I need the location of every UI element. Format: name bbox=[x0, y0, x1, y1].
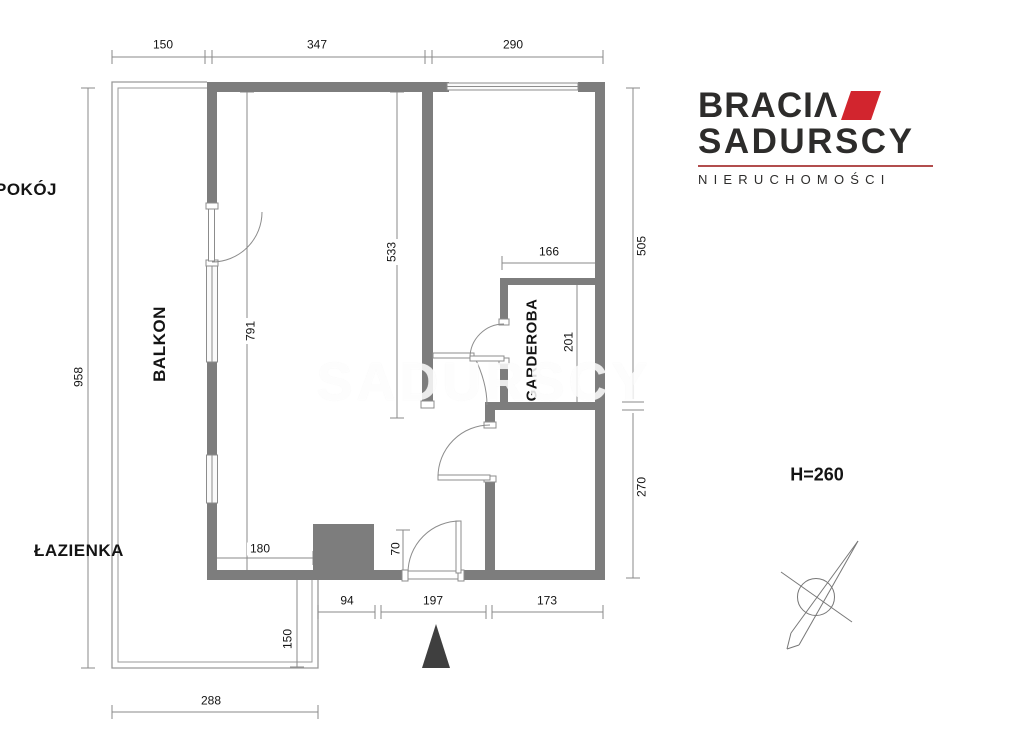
brand-line2: SADURSCY bbox=[698, 124, 933, 160]
dim-pokoj-height: 505 bbox=[636, 233, 649, 259]
dim-balkon-width: 288 bbox=[198, 695, 224, 708]
dim-bottom-2: 197 bbox=[420, 595, 446, 608]
dim-divider: 533 bbox=[386, 239, 399, 265]
dim-garderoba-width: 166 bbox=[536, 246, 562, 259]
room-label-pokoj: POKÓJ bbox=[0, 180, 1019, 200]
dim-salon-height: 791 bbox=[245, 318, 258, 344]
brand-line1: BRACIΛ bbox=[698, 88, 838, 124]
dimension-lines bbox=[81, 50, 644, 719]
dim-balkon-lower: 150 bbox=[282, 626, 295, 652]
windows bbox=[207, 83, 579, 503]
dim-top-right: 290 bbox=[500, 39, 526, 52]
floor-plan-page: SALON POKÓJ BALKON KUCHNIA GARDEROBA ŁAZ… bbox=[0, 0, 1024, 748]
brand-flag-icon bbox=[841, 91, 881, 120]
walls bbox=[207, 82, 605, 580]
room-label-balkon: BALKON bbox=[150, 306, 170, 382]
dim-bottom-1: 94 bbox=[337, 595, 356, 608]
dim-bottom-3: 173 bbox=[534, 595, 560, 608]
room-label-garderoba: GARDEROBA bbox=[524, 299, 541, 402]
dim-garderoba-height: 201 bbox=[563, 329, 576, 355]
dim-left-total: 958 bbox=[73, 364, 86, 390]
dim-top-mid: 347 bbox=[304, 39, 330, 52]
room-label-salon: SALON bbox=[0, 158, 825, 178]
room-label-kuchnia: KUCHNIA bbox=[0, 485, 829, 505]
dim-top-left: 150 bbox=[150, 39, 176, 52]
room-label-lazienka: ŁAZIENKA bbox=[34, 541, 1024, 561]
north-arrow bbox=[422, 624, 450, 668]
height-note: H=260 bbox=[790, 465, 844, 486]
